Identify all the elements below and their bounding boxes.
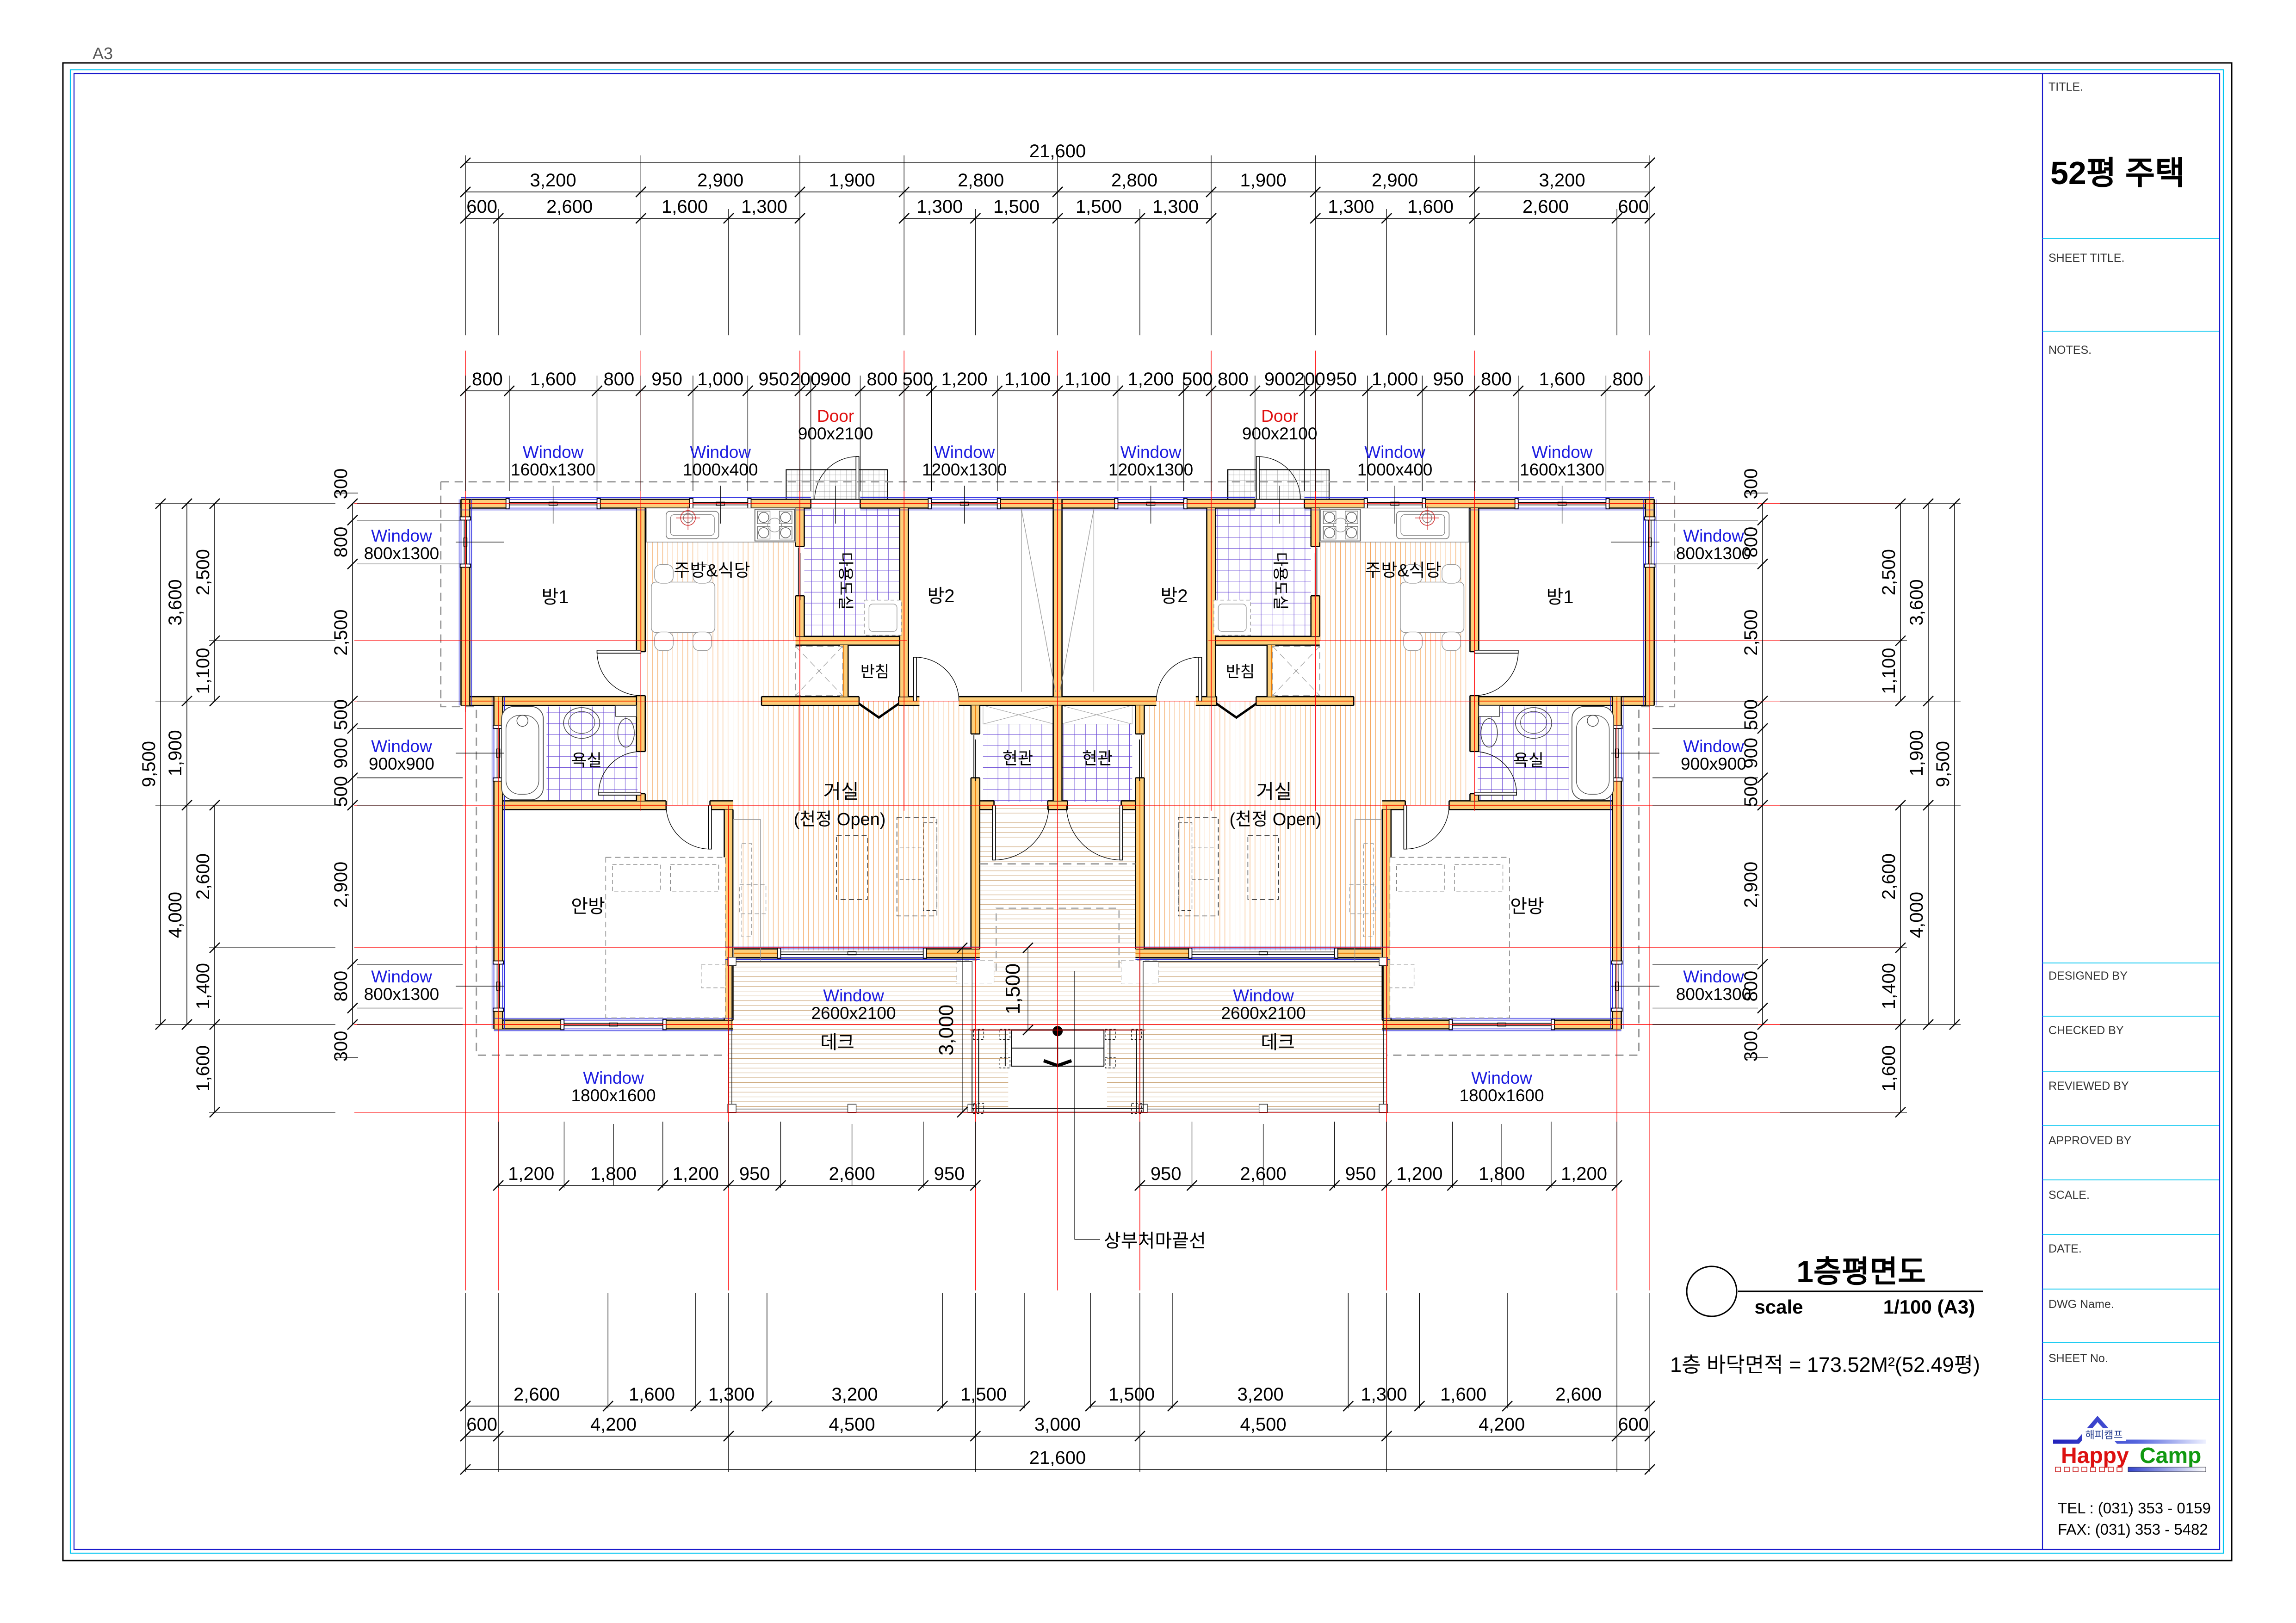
svg-text:1,600: 1,600 [1879, 1045, 1899, 1092]
svg-text:거실: 거실 [1256, 781, 1292, 802]
svg-text:500: 500 [1182, 369, 1213, 389]
svg-text:800: 800 [331, 971, 351, 1002]
svg-text:4,000: 4,000 [1906, 892, 1927, 938]
svg-text:1,500: 1,500 [1002, 963, 1024, 1014]
svg-text:Window: Window [371, 526, 432, 545]
svg-text:1,600: 1,600 [629, 1384, 675, 1405]
svg-text:1,100: 1,100 [193, 648, 213, 694]
svg-text:1,600: 1,600 [530, 369, 576, 389]
svg-text:600: 600 [466, 1414, 497, 1435]
svg-text:3,600: 3,600 [165, 579, 186, 625]
svg-text:2,800: 2,800 [1111, 170, 1157, 191]
svg-text:1,100: 1,100 [1879, 648, 1899, 694]
svg-text:2,600: 2,600 [1522, 197, 1569, 217]
svg-text:4,500: 4,500 [1240, 1414, 1287, 1435]
svg-text:욕실: 욕실 [571, 751, 602, 770]
svg-text:1,300: 1,300 [1152, 197, 1199, 217]
svg-text:1000x400: 1000x400 [683, 460, 758, 479]
svg-text:SCALE.: SCALE. [2048, 1189, 2090, 1202]
svg-text:900: 900 [1264, 369, 1295, 389]
svg-text:Window: Window [1683, 737, 1744, 756]
svg-text:2,900: 2,900 [1741, 862, 1761, 908]
svg-text:3,200: 3,200 [1238, 1384, 1284, 1405]
svg-text:1층평면도: 1층평면도 [1796, 1254, 1926, 1289]
svg-text:Window: Window [690, 443, 751, 462]
svg-text:800x1300: 800x1300 [1676, 985, 1751, 1004]
svg-text:300: 300 [331, 469, 351, 500]
svg-text:1,100: 1,100 [1064, 369, 1111, 389]
svg-text:2,500: 2,500 [193, 549, 213, 595]
svg-text:800x1300: 800x1300 [1676, 544, 1751, 563]
svg-text:2,500: 2,500 [1741, 609, 1761, 655]
svg-text:욕실: 욕실 [1513, 751, 1544, 770]
svg-text:200: 200 [1294, 369, 1325, 389]
svg-text:1800x1600: 1800x1600 [1459, 1086, 1544, 1105]
svg-text:1층 바닥면적 = 173.52M²(52.49평): 1층 바닥면적 = 173.52M²(52.49평) [1670, 1353, 1980, 1376]
svg-text:TEL : (031) 353 - 0159: TEL : (031) 353 - 0159 [2058, 1500, 2211, 1517]
svg-text:500: 500 [1741, 776, 1761, 807]
svg-text:2,600: 2,600 [193, 853, 213, 900]
svg-text:Door: Door [817, 407, 854, 426]
svg-text:3,000: 3,000 [935, 1005, 958, 1055]
svg-text:2,600: 2,600 [1879, 853, 1899, 900]
svg-text:데크: 데크 [1261, 1032, 1295, 1053]
svg-text:방1: 방1 [1546, 587, 1573, 607]
svg-text:DWG Name.: DWG Name. [2048, 1298, 2114, 1311]
svg-text:4,200: 4,200 [1479, 1414, 1525, 1435]
svg-text:800: 800 [866, 369, 897, 389]
svg-text:1,000: 1,000 [697, 369, 743, 389]
svg-text:1,000: 1,000 [1372, 369, 1418, 389]
svg-text:300: 300 [1741, 1031, 1761, 1062]
svg-text:Window: Window [523, 443, 584, 462]
svg-text:1,500: 1,500 [1108, 1384, 1155, 1405]
svg-text:Window: Window [1364, 443, 1425, 462]
svg-text:안방: 안방 [1510, 896, 1544, 917]
svg-text:1,300: 1,300 [1361, 1384, 1407, 1405]
svg-text:DATE.: DATE. [2048, 1242, 2082, 1255]
svg-text:반침: 반침 [1226, 663, 1255, 681]
svg-text:방2: 방2 [927, 586, 954, 606]
svg-text:600: 600 [1618, 197, 1649, 217]
svg-text:500: 500 [1741, 699, 1761, 730]
svg-text:Camp: Camp [2140, 1444, 2201, 1468]
svg-text:500: 500 [903, 369, 934, 389]
svg-text:1,900: 1,900 [1240, 170, 1287, 191]
svg-text:800x1300: 800x1300 [364, 985, 439, 1004]
svg-text:1/100 (A3): 1/100 (A3) [1883, 1296, 1975, 1318]
svg-text:1,200: 1,200 [673, 1164, 719, 1184]
svg-text:900x2100: 900x2100 [1242, 424, 1318, 443]
svg-text:3,200: 3,200 [1539, 170, 1585, 191]
svg-text:950: 950 [651, 369, 682, 389]
svg-text:1,300: 1,300 [741, 197, 787, 217]
svg-text:CHECKED BY: CHECKED BY [2048, 1024, 2124, 1037]
svg-text:1,600: 1,600 [1440, 1384, 1486, 1405]
svg-text:2,500: 2,500 [331, 609, 351, 655]
svg-text:900x900: 900x900 [369, 754, 434, 773]
svg-text:2600x2100: 2600x2100 [1221, 1004, 1306, 1023]
svg-text:1,400: 1,400 [193, 963, 213, 1009]
svg-text:4,500: 4,500 [829, 1414, 875, 1435]
svg-text:거실: 거실 [823, 781, 859, 802]
svg-text:주방&식당: 주방&식당 [674, 561, 750, 580]
svg-text:A3: A3 [93, 44, 113, 63]
svg-text:안방: 안방 [571, 896, 605, 917]
svg-text:다용도실: 다용도실 [836, 552, 854, 610]
svg-text:800: 800 [1481, 369, 1512, 389]
svg-text:9,500: 9,500 [1933, 741, 1953, 787]
svg-text:(천정 Open): (천정 Open) [794, 810, 886, 829]
svg-text:1,600: 1,600 [662, 197, 708, 217]
svg-text:Window: Window [1233, 986, 1294, 1005]
svg-text:600: 600 [466, 197, 497, 217]
svg-text:950: 950 [934, 1164, 965, 1184]
svg-text:1,100: 1,100 [1004, 369, 1051, 389]
svg-text:SHEET TITLE.: SHEET TITLE. [2048, 252, 2124, 265]
svg-text:상부처마끝선: 상부처마끝선 [1104, 1231, 1206, 1251]
svg-text:다용도실: 다용도실 [1271, 552, 1289, 610]
svg-text:2,600: 2,600 [514, 1384, 560, 1405]
svg-text:4,000: 4,000 [165, 892, 186, 938]
svg-text:800: 800 [604, 369, 635, 389]
svg-text:3,200: 3,200 [530, 170, 576, 191]
svg-text:950: 950 [1326, 369, 1357, 389]
svg-text:1,600: 1,600 [1539, 369, 1585, 389]
svg-text:950: 950 [758, 369, 789, 389]
svg-text:1800x1600: 1800x1600 [571, 1086, 656, 1105]
svg-text:Window: Window [934, 443, 995, 462]
svg-text:1,200: 1,200 [508, 1164, 554, 1184]
svg-text:950: 950 [1345, 1164, 1376, 1184]
svg-text:800: 800 [1218, 369, 1249, 389]
svg-text:1,300: 1,300 [916, 197, 963, 217]
svg-text:800: 800 [1612, 369, 1643, 389]
svg-text:500: 500 [331, 699, 351, 730]
svg-text:방1: 방1 [541, 587, 569, 607]
svg-text:3,000: 3,000 [1034, 1414, 1081, 1435]
svg-text:950: 950 [1433, 369, 1464, 389]
svg-text:Door: Door [1261, 407, 1298, 426]
svg-text:1,300: 1,300 [1328, 197, 1374, 217]
svg-text:1,500: 1,500 [1076, 197, 1122, 217]
svg-text:2,600: 2,600 [546, 197, 593, 217]
svg-text:1,200: 1,200 [1396, 1164, 1442, 1184]
svg-text:FAX: (031) 353 - 5482: FAX: (031) 353 - 5482 [2058, 1521, 2208, 1538]
svg-text:3,200: 3,200 [832, 1384, 878, 1405]
svg-text:Window: Window [371, 967, 432, 986]
svg-text:DESIGNED BY: DESIGNED BY [2048, 969, 2128, 982]
svg-text:1,900: 1,900 [1906, 730, 1927, 776]
svg-text:Window: Window [1471, 1068, 1532, 1087]
svg-text:900: 900 [820, 369, 851, 389]
svg-text:1200x1300: 1200x1300 [922, 460, 1007, 479]
svg-text:Window: Window [1683, 526, 1744, 545]
svg-text:해피캠프: 해피캠프 [2086, 1429, 2123, 1441]
svg-text:1600x1300: 1600x1300 [1520, 460, 1604, 479]
svg-text:52평 주택: 52평 주택 [2050, 155, 2185, 191]
svg-text:1,300: 1,300 [708, 1384, 755, 1405]
svg-text:Window: Window [1683, 967, 1744, 986]
svg-text:1000x400: 1000x400 [1357, 460, 1433, 479]
svg-text:1600x1300: 1600x1300 [511, 460, 595, 479]
svg-text:1,600: 1,600 [193, 1045, 213, 1092]
svg-text:현관: 현관 [1082, 749, 1113, 768]
svg-text:800x1300: 800x1300 [364, 544, 439, 563]
svg-text:1,200: 1,200 [1128, 369, 1174, 389]
svg-text:Window: Window [583, 1068, 644, 1087]
svg-text:Window: Window [823, 986, 884, 1005]
svg-text:Window: Window [1120, 443, 1182, 462]
svg-text:SHEET No.: SHEET No. [2048, 1352, 2108, 1365]
svg-text:200: 200 [790, 369, 821, 389]
svg-text:600: 600 [1618, 1414, 1649, 1435]
svg-text:1,900: 1,900 [165, 730, 186, 776]
svg-text:1,900: 1,900 [829, 170, 875, 191]
svg-text:1,200: 1,200 [1561, 1164, 1607, 1184]
svg-text:2,800: 2,800 [958, 170, 1004, 191]
svg-text:NOTES.: NOTES. [2048, 344, 2092, 357]
svg-text:3,600: 3,600 [1906, 579, 1927, 625]
svg-text:반침: 반침 [860, 663, 890, 681]
svg-text:300: 300 [1741, 469, 1761, 500]
svg-text:21,600: 21,600 [1029, 1448, 1086, 1468]
svg-text:4,200: 4,200 [590, 1414, 637, 1435]
svg-text:1,400: 1,400 [1879, 963, 1899, 1009]
svg-text:Window: Window [371, 737, 432, 756]
svg-text:900x900: 900x900 [1681, 754, 1746, 773]
svg-text:Window: Window [1532, 443, 1593, 462]
svg-text:2,900: 2,900 [1372, 170, 1418, 191]
svg-text:2,900: 2,900 [331, 862, 351, 908]
svg-text:800: 800 [472, 369, 503, 389]
svg-text:REVIEWED BY: REVIEWED BY [2048, 1080, 2129, 1092]
svg-text:APPROVED BY: APPROVED BY [2048, 1134, 2132, 1147]
svg-text:2600x2100: 2600x2100 [811, 1004, 896, 1023]
svg-text:방2: 방2 [1160, 586, 1188, 606]
svg-text:2,600: 2,600 [1555, 1384, 1602, 1405]
svg-text:(천정 Open): (천정 Open) [1230, 810, 1322, 829]
svg-text:현관: 현관 [1003, 749, 1033, 768]
svg-text:950: 950 [739, 1164, 770, 1184]
svg-text:1,500: 1,500 [960, 1384, 1007, 1405]
svg-text:1200x1300: 1200x1300 [1108, 460, 1193, 479]
svg-text:900: 900 [331, 738, 351, 769]
svg-text:TITLE.: TITLE. [2048, 80, 2083, 93]
svg-text:1,500: 1,500 [993, 197, 1040, 217]
svg-text:1,200: 1,200 [941, 369, 988, 389]
svg-text:500: 500 [331, 776, 351, 807]
svg-text:2,900: 2,900 [697, 170, 743, 191]
svg-text:scale: scale [1754, 1296, 1803, 1318]
svg-text:900x2100: 900x2100 [798, 424, 873, 443]
svg-text:9,500: 9,500 [139, 741, 159, 787]
svg-text:데크: 데크 [820, 1032, 854, 1053]
svg-text:1,600: 1,600 [1407, 197, 1454, 217]
svg-text:Happy: Happy [2061, 1444, 2129, 1468]
svg-text:주방&식당: 주방&식당 [1365, 561, 1441, 580]
svg-text:2,500: 2,500 [1879, 549, 1899, 595]
svg-text:300: 300 [331, 1031, 351, 1062]
svg-text:950: 950 [1151, 1164, 1182, 1184]
svg-text:800: 800 [331, 527, 351, 558]
